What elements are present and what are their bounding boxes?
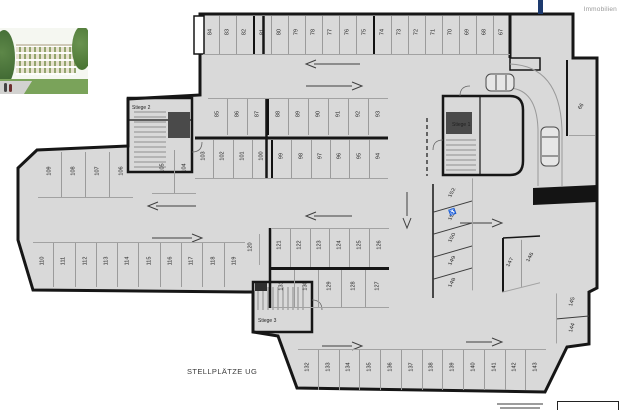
parking-stall-79: 79 bbox=[288, 16, 305, 54]
stall-number: 138 bbox=[430, 362, 436, 371]
parking-stall-74: 74 bbox=[373, 16, 391, 54]
parking-stall-102: 102 bbox=[213, 140, 232, 178]
stall-number: 97 bbox=[318, 153, 324, 159]
elevator-stiege2 bbox=[168, 112, 190, 138]
stall-number: 137 bbox=[409, 362, 415, 371]
stall-number: 77 bbox=[328, 29, 334, 35]
parking-stall-100: 100 bbox=[252, 140, 271, 178]
parking-stall-68: 68 bbox=[476, 16, 493, 54]
parking-stall-97: 97 bbox=[311, 140, 330, 178]
stall-number: 104 bbox=[183, 163, 189, 172]
stall-number: 114 bbox=[126, 257, 132, 266]
parking-stall-118: 118 bbox=[202, 243, 223, 287]
stall-number: 126 bbox=[377, 240, 383, 249]
stall-number: 88 bbox=[276, 111, 282, 117]
parking-stall-85: 85 bbox=[208, 99, 227, 135]
stall-number: 148 bbox=[448, 278, 458, 289]
stall-number: 128 bbox=[351, 281, 357, 290]
person-graphic bbox=[9, 84, 12, 92]
stall-number: 95 bbox=[357, 153, 363, 159]
parking-stall-84: 84 bbox=[203, 16, 219, 54]
stall-number: 83 bbox=[225, 29, 231, 35]
stall-number: 112 bbox=[83, 257, 89, 266]
car-icon bbox=[541, 127, 559, 166]
stall-number: 92 bbox=[356, 111, 362, 117]
stall-number: 91 bbox=[336, 111, 342, 117]
stall-number: 87 bbox=[255, 111, 261, 117]
stall-number: 122 bbox=[297, 240, 303, 249]
stall-number: 82 bbox=[242, 29, 248, 35]
stall-number: 129 bbox=[327, 281, 333, 290]
parking-stall-136: 136 bbox=[380, 350, 401, 390]
stall-row-left-wing: 109108107106 bbox=[38, 152, 133, 198]
building-graphic bbox=[16, 44, 76, 75]
elevator-stiege3 bbox=[255, 283, 267, 291]
parking-stall-134: 134 bbox=[339, 350, 360, 390]
stall-number: 78 bbox=[311, 29, 317, 35]
stall-number: 69 bbox=[465, 29, 471, 35]
parking-stall-146: 146 bbox=[521, 235, 541, 287]
parking-stall-143: 143 bbox=[525, 350, 546, 390]
stall-number: 75 bbox=[362, 29, 368, 35]
stall-number: 117 bbox=[189, 257, 195, 266]
stall-number: 98 bbox=[299, 153, 305, 159]
stall-number: 100 bbox=[259, 151, 265, 160]
stall-number: 101 bbox=[240, 151, 246, 160]
car-icon bbox=[486, 74, 514, 91]
project-rendering-image bbox=[0, 28, 88, 94]
parking-stall-93: 93 bbox=[368, 99, 388, 135]
stall-number: 130 bbox=[303, 281, 309, 290]
parking-stall-115: 115 bbox=[138, 243, 159, 287]
stall-number: 113 bbox=[104, 257, 110, 266]
stall-row-top: 848382818079787776757473727170696867 bbox=[203, 16, 510, 55]
stall-number: 140 bbox=[471, 362, 477, 371]
stall-number: 86 bbox=[235, 111, 241, 117]
parking-stall-88: 88 bbox=[267, 99, 288, 135]
stall-row-right-pair: 147146 bbox=[502, 235, 540, 292]
parking-stall-66: 66 bbox=[569, 64, 595, 136]
parking-stall-114: 114 bbox=[117, 243, 138, 287]
stall-column-right-edge: 145144 bbox=[556, 291, 589, 344]
company-name: Immobilien bbox=[584, 6, 617, 13]
stall-number: 152 bbox=[448, 188, 458, 199]
stall-number: 125 bbox=[357, 240, 363, 249]
parking-stall-131: 131 bbox=[271, 270, 294, 307]
parking-stall-109: 109 bbox=[38, 152, 61, 197]
stall-number: 102 bbox=[221, 151, 227, 160]
parking-stall-120: 120 bbox=[243, 234, 260, 265]
stall-number: 109 bbox=[47, 166, 53, 175]
parking-stall-75: 75 bbox=[356, 16, 373, 54]
stall-number: 115 bbox=[147, 257, 153, 266]
stall-number: 74 bbox=[380, 29, 386, 35]
parking-stall-94: 94 bbox=[369, 140, 388, 178]
parking-stall-72: 72 bbox=[408, 16, 425, 54]
stall-number: 110 bbox=[40, 257, 46, 266]
stall-number: 144 bbox=[569, 323, 577, 333]
stall-number: 96 bbox=[337, 153, 343, 159]
tree-graphic bbox=[0, 30, 15, 86]
stall-row-low-lower: 131130129128127 bbox=[271, 270, 389, 308]
parking-stall-124: 124 bbox=[329, 229, 349, 267]
stall-number: 84 bbox=[208, 29, 214, 35]
parking-stall-67: 67 bbox=[493, 16, 510, 54]
parking-stall-126: 126 bbox=[369, 229, 389, 267]
stall-number: 111 bbox=[62, 257, 68, 265]
stall-number: 132 bbox=[305, 362, 311, 371]
stall-number: 123 bbox=[317, 240, 323, 249]
parking-stall-139: 139 bbox=[442, 350, 463, 390]
stiege3-label: Stiege 3 bbox=[258, 318, 276, 324]
stall-number: 127 bbox=[375, 281, 381, 290]
parking-stall-110: 110 bbox=[33, 243, 53, 287]
parking-stall-71: 71 bbox=[425, 16, 442, 54]
stall-number: 72 bbox=[414, 29, 420, 35]
stall-number: 131 bbox=[280, 281, 286, 290]
parking-stall-96: 96 bbox=[330, 140, 349, 178]
parking-stall-147: 147 bbox=[502, 240, 521, 292]
stall-number: 103 bbox=[201, 151, 207, 160]
stall-column-right-diagonal: 152151150149148 bbox=[433, 178, 473, 301]
parking-stall-125: 125 bbox=[349, 229, 369, 267]
parking-stall-108: 108 bbox=[61, 152, 85, 197]
stall-number: 134 bbox=[347, 362, 353, 371]
stall-number: 94 bbox=[376, 153, 382, 159]
parking-stall-69: 69 bbox=[459, 16, 476, 54]
parking-stall-144: 144 bbox=[557, 315, 589, 343]
parking-stall-104: 104 bbox=[174, 150, 197, 193]
parking-stall-77: 77 bbox=[322, 16, 339, 54]
parking-stall-117: 117 bbox=[181, 243, 202, 287]
stall-row-mid-left: 105104 bbox=[152, 150, 196, 194]
stall-number: 116 bbox=[168, 257, 174, 266]
stall-number: 99 bbox=[280, 153, 286, 159]
parking-stall-105: 105 bbox=[152, 150, 174, 193]
stall-number: 139 bbox=[450, 362, 456, 371]
parking-stall-73: 73 bbox=[391, 16, 408, 54]
stall-row-bottom: 132133134135136137138139140141142143 bbox=[298, 349, 546, 390]
stall-number: 135 bbox=[367, 362, 373, 371]
parking-stall-103: 103 bbox=[195, 140, 213, 178]
stall-number: 80 bbox=[277, 29, 283, 35]
stiege1-label: Stiege 1 bbox=[452, 122, 470, 128]
stall-number: 70 bbox=[448, 29, 454, 35]
parking-stall-107: 107 bbox=[85, 152, 109, 197]
parking-stall-87: 87 bbox=[247, 99, 267, 135]
parking-stall-127: 127 bbox=[365, 270, 389, 307]
stall-number: 79 bbox=[294, 29, 300, 35]
stall-number: 108 bbox=[71, 166, 77, 175]
plan-title: STELLPLÄTZE UG bbox=[187, 367, 257, 376]
stall-number: 90 bbox=[316, 111, 322, 117]
stall-number: 107 bbox=[95, 166, 101, 175]
stall-number: 105 bbox=[160, 163, 166, 172]
stall-number: 73 bbox=[397, 29, 403, 35]
parking-stall-132: 132 bbox=[298, 350, 318, 390]
stall-number: 93 bbox=[376, 111, 382, 117]
parking-stall-95: 95 bbox=[349, 140, 368, 178]
stall-row-low-upper: 121122123124125126 bbox=[271, 228, 389, 267]
parking-stall-112: 112 bbox=[75, 243, 96, 287]
stall-number: 150 bbox=[448, 233, 458, 244]
stall-number: 143 bbox=[533, 362, 539, 371]
tree-graphic bbox=[72, 28, 88, 70]
parking-stall-81: 81 bbox=[253, 16, 271, 54]
stall-number: 136 bbox=[388, 362, 394, 371]
parking-stall-133: 133 bbox=[318, 350, 339, 390]
stall-number: 68 bbox=[482, 29, 488, 35]
parking-stall-128: 128 bbox=[341, 270, 365, 307]
stall-row-bottom-left: 110111112113114115116117118119 bbox=[33, 242, 245, 287]
parking-stall-101: 101 bbox=[233, 140, 252, 178]
parking-stall-129: 129 bbox=[318, 270, 342, 307]
stall-number: 89 bbox=[296, 111, 302, 117]
parking-stall-142: 142 bbox=[505, 350, 526, 390]
stall-row-mid-upper: 858687888990919293 bbox=[208, 98, 388, 135]
parking-stall-116: 116 bbox=[160, 243, 181, 287]
stall-number: 119 bbox=[232, 257, 238, 266]
parking-stall-122: 122 bbox=[290, 229, 310, 267]
parking-stall-111: 111 bbox=[53, 243, 74, 287]
parking-stall-83: 83 bbox=[219, 16, 236, 54]
stall-number: 149 bbox=[448, 256, 458, 267]
parking-stall-92: 92 bbox=[348, 99, 368, 135]
stall-number: 142 bbox=[513, 362, 519, 371]
stiege2-label: Stiege 2 bbox=[132, 105, 150, 111]
parking-stall-76: 76 bbox=[339, 16, 356, 54]
fine-print-line bbox=[497, 403, 543, 405]
parking-stall-135: 135 bbox=[359, 350, 380, 390]
parking-stall-99: 99 bbox=[271, 140, 291, 178]
stall-number: 141 bbox=[492, 362, 498, 371]
parking-stall-123: 123 bbox=[310, 229, 330, 267]
stall-number: 145 bbox=[569, 297, 577, 307]
company-logo-bar bbox=[538, 0, 543, 14]
parking-stall-138: 138 bbox=[422, 350, 443, 390]
floorplan-page: { "branding": { "company": "Immobilien",… bbox=[0, 0, 620, 410]
stall-number: 120 bbox=[248, 242, 254, 251]
stall-row-mid-lower: 103102101100999897969594 bbox=[195, 140, 388, 179]
stall-number: 81 bbox=[260, 29, 266, 35]
parking-stall-70: 70 bbox=[442, 16, 459, 54]
parking-stall-82: 82 bbox=[236, 16, 253, 54]
stall-number: 66 bbox=[578, 103, 586, 111]
parking-stall-106: 106 bbox=[109, 152, 133, 197]
parking-stall-91: 91 bbox=[328, 99, 348, 135]
stall-number: 124 bbox=[337, 240, 343, 249]
parking-stall-130: 130 bbox=[294, 270, 318, 307]
person-graphic bbox=[4, 83, 7, 92]
parking-stall-89: 89 bbox=[288, 99, 308, 135]
stall-number: 106 bbox=[119, 166, 125, 175]
fine-print-line bbox=[500, 407, 540, 409]
parking-stall-113: 113 bbox=[96, 243, 117, 287]
parking-stall-140: 140 bbox=[463, 350, 484, 390]
stall-number: 133 bbox=[326, 362, 332, 371]
parking-stall-86: 86 bbox=[227, 99, 247, 135]
stall-number: 147 bbox=[506, 257, 516, 268]
stall-number: 118 bbox=[211, 257, 217, 266]
parking-stall-119: 119 bbox=[224, 243, 245, 287]
parking-stall-98: 98 bbox=[291, 140, 310, 178]
parking-stall-137: 137 bbox=[401, 350, 422, 390]
parking-stall-141: 141 bbox=[484, 350, 505, 390]
parking-stall-90: 90 bbox=[308, 99, 328, 135]
parking-stall-121: 121 bbox=[271, 229, 290, 267]
stall-number: 67 bbox=[499, 29, 505, 35]
title-block-box bbox=[557, 401, 619, 410]
parking-stall-145: 145 bbox=[557, 291, 589, 318]
parking-stall-78: 78 bbox=[305, 16, 322, 54]
stall-number: 121 bbox=[278, 240, 284, 249]
parking-stall-80: 80 bbox=[271, 16, 288, 54]
stall-number: 146 bbox=[526, 252, 536, 263]
stall-number: 71 bbox=[431, 29, 437, 35]
stall-number: 85 bbox=[215, 111, 221, 117]
stall-number: 76 bbox=[345, 29, 351, 35]
